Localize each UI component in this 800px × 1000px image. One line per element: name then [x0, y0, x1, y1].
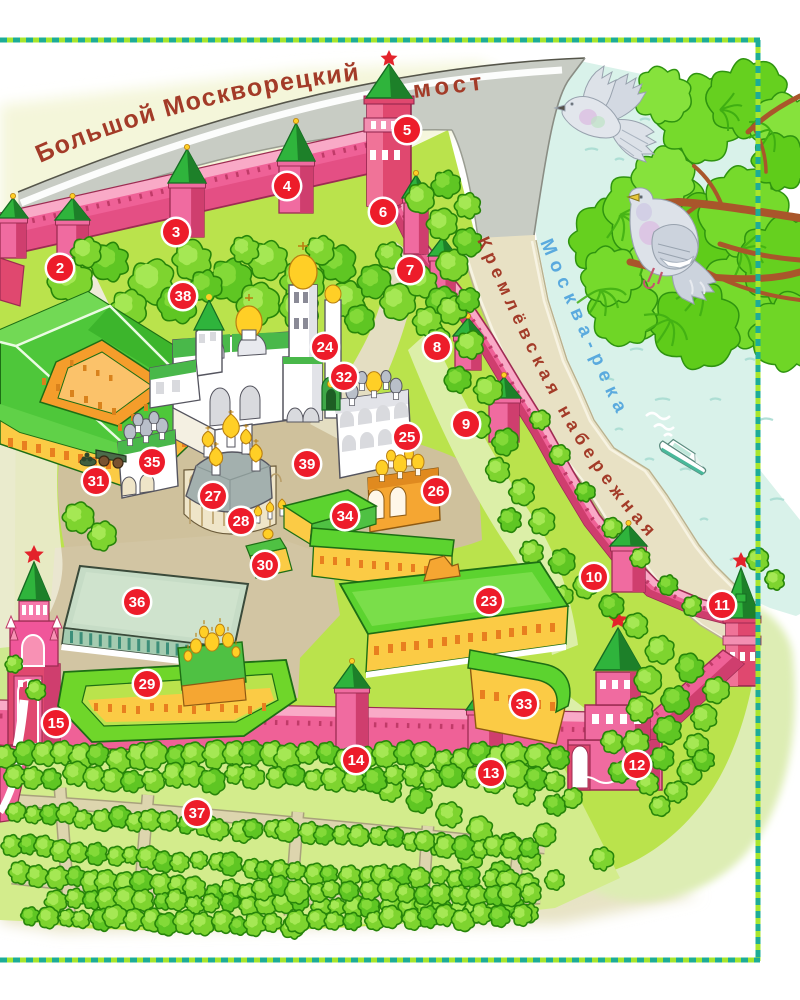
svg-text:35: 35 — [144, 454, 161, 471]
svg-text:11: 11 — [714, 597, 730, 614]
svg-text:28: 28 — [233, 513, 250, 530]
svg-text:13: 13 — [483, 765, 500, 782]
svg-text:25: 25 — [399, 429, 416, 446]
svg-text:9: 9 — [462, 416, 470, 433]
svg-text:24: 24 — [317, 339, 334, 356]
svg-text:39: 39 — [299, 456, 316, 473]
svg-text:23: 23 — [481, 593, 498, 610]
svg-text:14: 14 — [348, 752, 365, 769]
svg-text:37: 37 — [189, 805, 206, 822]
svg-text:33: 33 — [516, 696, 533, 713]
svg-text:3: 3 — [172, 224, 180, 241]
svg-text:29: 29 — [139, 676, 156, 693]
svg-text:12: 12 — [629, 757, 646, 774]
svg-text:8: 8 — [433, 339, 441, 356]
svg-text:7: 7 — [406, 262, 414, 279]
svg-text:26: 26 — [428, 483, 445, 500]
svg-text:38: 38 — [175, 288, 192, 305]
svg-text:32: 32 — [336, 369, 353, 386]
svg-text:27: 27 — [205, 488, 222, 505]
svg-text:4: 4 — [283, 178, 292, 195]
svg-text:34: 34 — [337, 508, 354, 525]
svg-text:36: 36 — [129, 594, 146, 611]
svg-text:5: 5 — [403, 122, 411, 139]
svg-text:2: 2 — [56, 260, 64, 277]
svg-text:15: 15 — [48, 715, 65, 732]
svg-text:10: 10 — [586, 569, 603, 586]
svg-text:6: 6 — [379, 204, 387, 221]
svg-text:31: 31 — [88, 473, 105, 490]
svg-text:30: 30 — [257, 557, 274, 574]
